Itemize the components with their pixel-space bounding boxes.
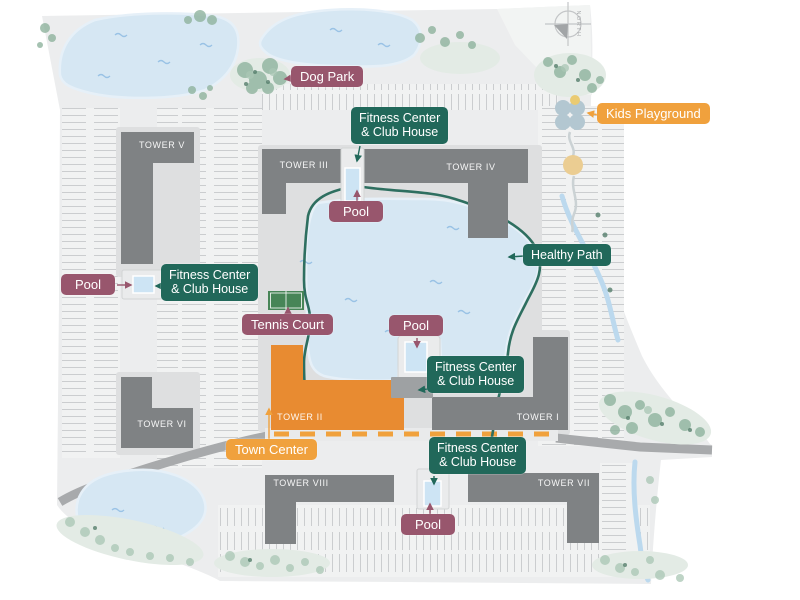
pool-structure-west	[133, 276, 154, 293]
fitness-line2: & Club House	[361, 125, 438, 139]
pool-structure-central	[405, 342, 427, 372]
tower-vi-label: TOWER VI	[137, 419, 186, 429]
fitness-center-label-south: Fitness Center & Club House	[429, 437, 526, 474]
pool-label-north: Pool	[329, 201, 383, 222]
pool-structure-north	[345, 168, 360, 201]
pool-label-south: Pool	[401, 514, 455, 535]
tower-vii-label: TOWER VII	[538, 478, 590, 488]
tower-v-label: TOWER V	[139, 140, 185, 150]
tower-viii-label: TOWER VIII	[273, 478, 328, 488]
arrow-healthy-path	[509, 256, 524, 257]
fitness-line1: Fitness Center	[437, 441, 518, 455]
compass-north-text: NORTH	[575, 11, 581, 38]
pool-label-west: Pool	[61, 274, 115, 295]
fitness-line1: Fitness Center	[169, 268, 250, 282]
fitness-line1: Fitness Center	[359, 111, 440, 125]
fitness-center-label-central: Fitness Center & Club House	[427, 356, 524, 393]
healthy-path-label: Healthy Path	[523, 244, 611, 266]
pool-label-central: Pool	[389, 315, 443, 336]
fitness-line2: & Club House	[437, 374, 514, 388]
fitness-center-label-north: Fitness Center & Club House	[351, 107, 448, 144]
kids-playground-label: Kids Playground	[597, 103, 710, 124]
tennis-court-label: Tennis Court	[242, 314, 333, 335]
tennis-court	[268, 291, 304, 310]
tower-ii-label: TOWER II	[277, 412, 323, 422]
fitness-line1: Fitness Center	[435, 360, 516, 374]
dog-park-label: Dog Park	[291, 66, 363, 87]
pool-structure-south	[424, 481, 441, 506]
site-plan-map: NORTH TOWER V TOWER III TOWER IV TOWER V…	[0, 0, 800, 600]
fitness-line2: & Club House	[171, 282, 248, 296]
tower-i-label: TOWER I	[517, 412, 560, 422]
tower-iv-label: TOWER IV	[446, 162, 495, 172]
tower-iii-label: TOWER III	[280, 160, 329, 170]
fitness-center-label-west: Fitness Center & Club House	[161, 264, 258, 301]
fitness-line2: & Club House	[439, 455, 516, 469]
pond-northwest	[60, 13, 239, 98]
town-center-label: Town Center	[226, 439, 317, 460]
site-map-svg: NORTH	[0, 0, 800, 600]
